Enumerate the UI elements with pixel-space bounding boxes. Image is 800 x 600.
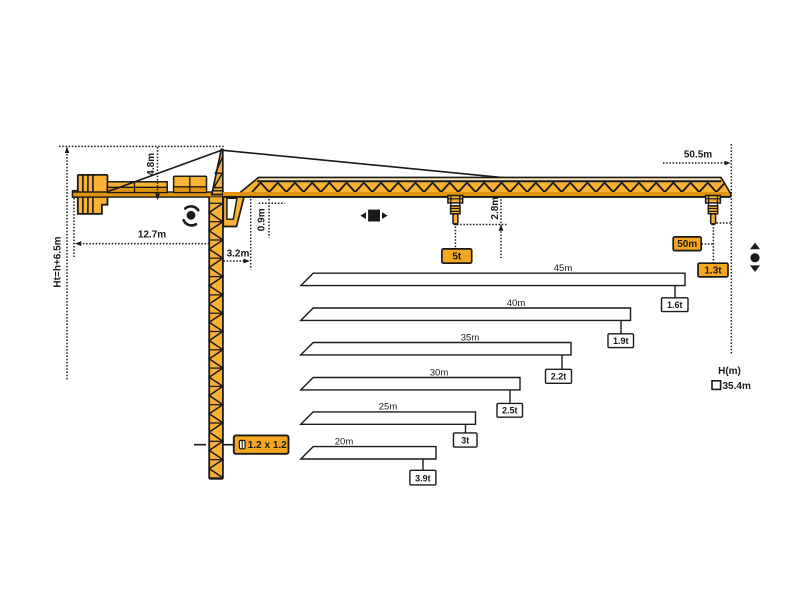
svg-text:H(m): H(m) <box>718 366 741 377</box>
svg-text:2.5t: 2.5t <box>502 406 518 416</box>
svg-text:Ht=h+6.5m: Ht=h+6.5m <box>53 236 64 287</box>
svg-text:5t: 5t <box>452 251 462 262</box>
svg-text:45m: 45m <box>554 263 573 274</box>
svg-text:35.4m: 35.4m <box>723 381 751 392</box>
svg-text:2.8m: 2.8m <box>490 197 501 220</box>
svg-text:1.9t: 1.9t <box>613 336 629 346</box>
svg-text:4.8m: 4.8m <box>146 153 157 176</box>
svg-text:12.7m: 12.7m <box>138 229 166 240</box>
svg-text:0.9m: 0.9m <box>257 208 268 231</box>
svg-text:30m: 30m <box>430 367 449 378</box>
svg-text:50.5m: 50.5m <box>684 150 712 161</box>
svg-text:3t: 3t <box>461 436 469 446</box>
svg-text:1.6t: 1.6t <box>667 300 683 310</box>
svg-text:1.3t: 1.3t <box>704 265 722 276</box>
svg-text:40m: 40m <box>507 298 526 309</box>
svg-text:3.2m: 3.2m <box>227 249 250 260</box>
svg-text:35m: 35m <box>461 332 480 343</box>
svg-text:20m: 20m <box>335 436 354 447</box>
svg-text:1.2 x 1.2: 1.2 x 1.2 <box>248 440 287 451</box>
svg-text:3.9t: 3.9t <box>415 473 431 483</box>
svg-text:50m: 50m <box>677 239 697 250</box>
svg-text:25m: 25m <box>379 402 398 413</box>
svg-text:2.2t: 2.2t <box>551 372 567 382</box>
